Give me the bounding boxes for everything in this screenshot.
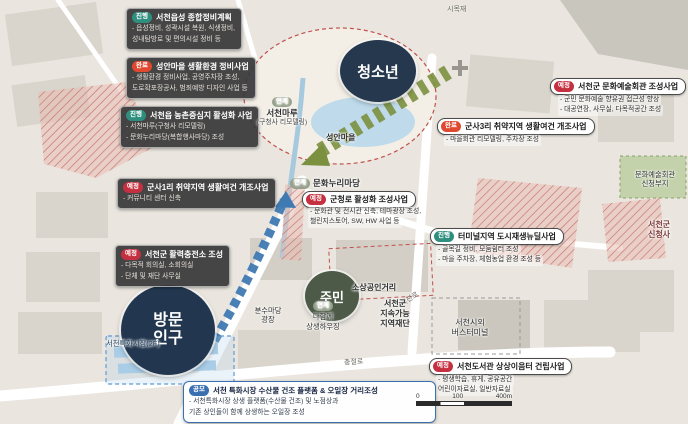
project-title: 성안마을 생활환경 정비사업 — [156, 61, 249, 72]
project-gunsa1ri: 예정 군사1리 취약지역 생활여건 개조사업 - 커뮤니티 센터 신축 — [117, 178, 276, 209]
label-text: 분수마당 — [243, 306, 293, 315]
project-title: 서천군 문화예술회관 조성사업 — [578, 81, 678, 92]
project-bullet: 도로확포장공사, 범죄예방 디자인 사업 등 — [132, 85, 249, 94]
label-text: 다함께 — [292, 312, 354, 321]
project-gunsa3ri: 완료 군사3리 취약지역 생활여건 개조사업 — [437, 118, 595, 135]
project-title: 군사1리 취약지역 생활여건 개조사업 — [147, 182, 269, 193]
cross-marker-icon — [452, 60, 468, 76]
status-badge: 예정 — [121, 249, 141, 259]
project-bullet: - 마을 주차장, 체험농업 환경 조성 등 — [436, 255, 543, 266]
scale-tick: 100 — [452, 393, 463, 400]
youth-circle-label: 청소년 — [357, 61, 398, 82]
label-seongan-village: 성안마을 — [326, 133, 355, 143]
label-text: 지속가능 — [364, 309, 426, 319]
project-terminal-newdeal: 진행 터미널지역 도시재생뉴딜사업 — [430, 228, 564, 245]
label-text: 광장 — [243, 315, 293, 324]
project-bullet: 성내탐방로 및 편의시설 정비 등 — [132, 36, 235, 45]
label-text: 문화누리마당 — [313, 178, 360, 189]
youth-circle: 청소년 — [340, 40, 416, 102]
project-fish-market-platform: 공모 서천 특화시장 수산물 건조 플랫폼 & 오일장 거리조성 - 서천특화시… — [183, 381, 436, 423]
label-text: 지역재단 — [364, 319, 426, 329]
label-text: 신청부지 — [626, 179, 684, 188]
label-seocheon-maru: 연계 서천마루 (구청사 리모델링) — [234, 97, 330, 128]
label-text: 신청사 — [636, 230, 682, 240]
status-badge: 예정 — [306, 194, 326, 204]
scale-bar-segments — [416, 401, 512, 406]
project-title: 군청로 활성화 조성사업 — [330, 194, 408, 205]
status-badge: 완료 — [132, 61, 152, 71]
scale-bar: 0 100 400m — [416, 393, 512, 406]
project-eupseong: 진행 서천읍성 종합정비계획 - 읍성정비, 성곽시설 복원, 식생정비, 성내… — [126, 8, 242, 50]
label-text: 서천마루 — [234, 108, 330, 119]
status-badge: 진행 — [434, 231, 454, 241]
project-bullet: - 대공연장, 사무실, 다목적공간 조성 — [558, 105, 663, 116]
project-bullet: 챌린지스토어, SW, HW 사업 등 — [308, 217, 402, 228]
scale-tick: 0 — [416, 393, 420, 400]
project-bullet: - 읍성정비, 성곽시설 복원, 식생정비, — [132, 25, 235, 34]
label-text: 버스터미널 — [438, 328, 502, 338]
label-chungjeolro-road: 충절로 — [344, 356, 364, 367]
label-text: 서천군 — [364, 299, 426, 309]
scale-tick: 400m — [496, 393, 512, 400]
project-title: 터미널지역 도시재생뉴딜사업 — [458, 231, 556, 242]
project-bullet: - 마을회관 리모델링, 주차장 조성 — [444, 135, 541, 146]
visitor-circle: 방문 인구 — [121, 285, 215, 375]
label-foundation: 서천군 지속가능 지역재단 — [364, 299, 426, 329]
link-badge: 연계 — [290, 178, 310, 188]
status-badge: 예정 — [433, 361, 453, 371]
project-library: 예정 서천도서관 상상이음터 건립사업 — [429, 358, 572, 375]
label-bus-terminal: 서천시외 버스터미널 — [438, 318, 502, 338]
project-title: 서천읍성 종합정비계획 — [156, 12, 232, 23]
project-bullet: - 커뮤니티 센터 신축 — [123, 195, 269, 204]
status-badge: 진행 — [132, 12, 152, 22]
project-bullet: - 생활환경 정비사업, 공영주차장 조성, — [132, 74, 249, 83]
project-title: 서천군 활력충전소 조성 — [145, 249, 223, 260]
label-text: (구청사 리모델링) — [234, 119, 330, 127]
project-bullet: - 다목적 회의실, 소회의실 — [121, 262, 223, 271]
label-text: 서천시외 — [438, 318, 502, 328]
masterplan-map: 청소년 주민 방문 인구 진행 서천읍성 종합정비계획 - 읍성정비, 성곽시설… — [0, 0, 688, 424]
project-guncheongro: 예정 군청로 활성화 조성사업 — [302, 191, 416, 208]
label-special-market: 서천특화시장(2F) — [106, 339, 160, 348]
status-badge: 예정 — [554, 81, 574, 91]
project-title: 서천 특화시장 수산물 건조 플랫폼 & 오일장 거리조성 — [213, 385, 378, 396]
project-bullet: - 단체 및 재단 사무실 — [121, 273, 223, 282]
label-munhwa-nuri: 연계 문화누리마당 — [290, 178, 360, 189]
project-bullet: - 문화누리마당(복합행사마당) 조성 — [126, 134, 252, 143]
link-badge: 연계 — [272, 97, 292, 107]
label-text: 서천군 — [636, 220, 682, 230]
project-bullet: - 서천특화시장 상생 플랫폼(수산물 건조) 및 노점상과 — [189, 398, 429, 407]
label-merchant-street: 소상공인거리 — [352, 283, 396, 293]
label-simokjae: 시목재 — [447, 4, 466, 14]
project-bullet: 기존 상인들이 함께 상생하는 오일장 조성 — [189, 409, 429, 418]
status-badge: 공모 — [189, 385, 209, 395]
status-badge: 완료 — [441, 121, 461, 131]
label-fountain-plaza: 분수마당 광장 — [243, 306, 293, 324]
label-artcenter-site: 문화예술회관 신청부지 — [626, 170, 684, 188]
project-seongan: 완료 성안마을 생활환경 정비사업 - 생활환경 정비사업, 공영주차장 조성,… — [126, 57, 256, 99]
link-badge: 연계 — [313, 301, 333, 311]
project-title: 군사3리 취약지역 생활여건 개조사업 — [465, 121, 587, 132]
status-badge: 진행 — [126, 110, 146, 120]
project-charging-station: 예정 서천군 활력충전소 조성 - 다목적 회의실, 소회의실 - 단체 및 재… — [115, 245, 230, 287]
label-text: 상생하우징 — [292, 322, 354, 331]
label-new-county-hall: 서천군 신청사 — [636, 220, 682, 240]
project-art-center: 예정 서천군 문화예술회관 조성사업 — [550, 78, 686, 95]
visitor-circle-label-1: 방문 — [153, 312, 182, 330]
label-housing: 연계 다함께 상생하우징 — [292, 301, 354, 331]
label-text: 문화예술회관 — [626, 170, 684, 179]
status-badge: 예정 — [123, 182, 143, 192]
project-title: 서천도서관 상상이음터 건립사업 — [457, 361, 564, 372]
